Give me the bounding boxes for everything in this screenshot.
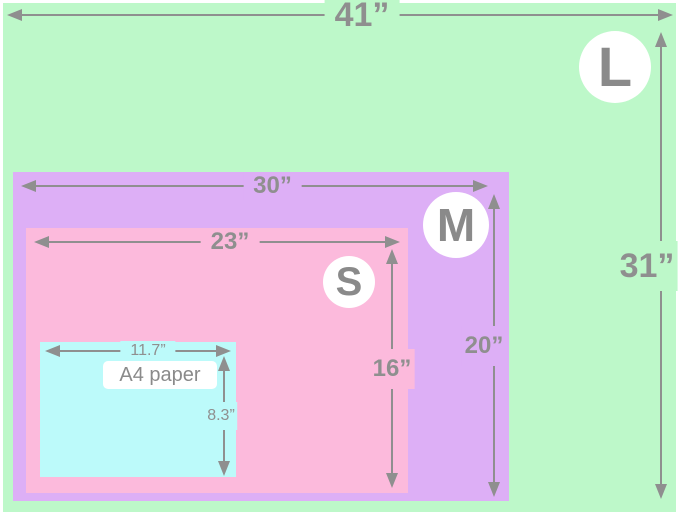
s-height-label: 16” xyxy=(370,349,415,389)
arrowhead-down-icon xyxy=(655,484,667,499)
arrowhead-right-icon xyxy=(385,236,400,248)
arrowhead-right-icon xyxy=(473,180,488,192)
arrowhead-down-icon xyxy=(386,473,398,488)
a4-width-label: 11.7” xyxy=(120,341,175,361)
arrowhead-left-icon xyxy=(45,345,60,357)
size-badge-s: S xyxy=(323,256,375,308)
m-width-label: 30” xyxy=(243,172,302,200)
size-badge-s-letter: S xyxy=(336,262,363,302)
arrowhead-up-icon xyxy=(218,356,230,371)
size-badge-l: L xyxy=(579,31,651,103)
size-comparison-diagram: 41” 31” 30” 20” 23” 16” 11 xyxy=(0,0,679,515)
size-badge-l-letter: L xyxy=(598,39,632,95)
l-height-label: 31” xyxy=(617,241,678,291)
arrowhead-up-icon xyxy=(655,32,667,47)
arrowhead-down-icon xyxy=(488,482,500,497)
size-badge-m: M xyxy=(423,192,489,258)
a4-paper-label: A4 paper xyxy=(103,361,217,389)
arrowhead-left-icon xyxy=(7,9,22,21)
s-width-label: 23” xyxy=(201,228,260,256)
arrowhead-left-icon xyxy=(34,236,49,248)
arrowhead-up-icon xyxy=(386,249,398,264)
l-width-label: 41” xyxy=(325,0,400,34)
size-badge-m-letter: M xyxy=(437,202,475,248)
arrowhead-right-icon xyxy=(658,9,673,21)
arrowhead-down-icon xyxy=(218,461,230,476)
arrowhead-up-icon xyxy=(488,194,500,209)
arrowhead-left-icon xyxy=(21,180,36,192)
m-height-label: 20” xyxy=(462,326,507,366)
a4-height-label: 8.3” xyxy=(205,402,237,430)
